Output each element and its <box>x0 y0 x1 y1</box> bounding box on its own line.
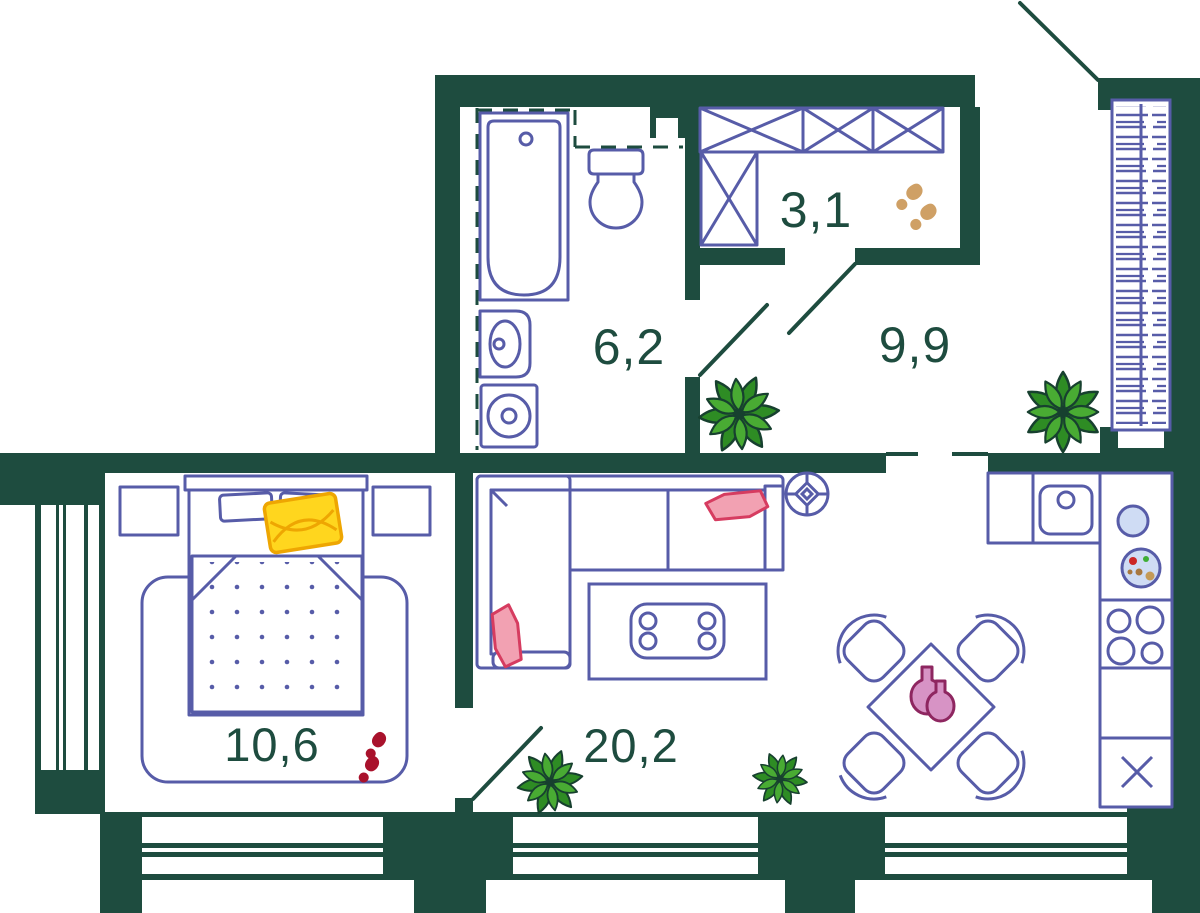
wall-bathroom-east-stub <box>685 377 700 455</box>
nightstand-right-icon <box>373 487 430 535</box>
pier-below-1 <box>414 880 486 913</box>
wall-bottom-right-pier <box>1152 880 1200 913</box>
coffee-table-icon <box>631 604 724 658</box>
window-left-line2 <box>56 505 59 770</box>
hanger-rail-icon <box>1112 100 1170 430</box>
wall-bathroom-east <box>685 107 700 300</box>
vent-notch <box>656 118 678 138</box>
windows-bottom <box>142 812 1127 880</box>
wall-wardrobe-bottom-right <box>855 248 980 265</box>
wall-passage-lip-left <box>886 452 918 456</box>
wall-left-bump <box>0 453 105 505</box>
room-label-bedroom: 10,6 <box>224 718 319 771</box>
stool-icon <box>1118 506 1148 536</box>
wall-main-horizontal <box>0 453 886 473</box>
window-left-line5 <box>99 505 105 770</box>
wall-wardrobe-bottom-left <box>700 248 785 265</box>
wall-bottom-left-pier <box>100 812 142 913</box>
window-living-right <box>885 812 1127 880</box>
room-label-hallway: 9,9 <box>879 317 952 373</box>
floor-plan: 3,1 6,2 9,9 10,6 20,2 <box>0 0 1200 913</box>
washing-machine-icon <box>481 385 537 447</box>
wall-right <box>1170 78 1200 805</box>
bathtub-icon <box>480 113 568 300</box>
ceiling-light-icon <box>786 473 828 515</box>
pier-below-2 <box>785 880 855 913</box>
plate-icon <box>1122 549 1160 587</box>
yellow-pillow-icon <box>264 493 343 554</box>
wall-top <box>435 75 975 107</box>
room-label-wardrobe: 3,1 <box>780 182 853 238</box>
kitchen-sink-icon <box>1040 486 1092 534</box>
room-label-bathroom: 6,2 <box>593 319 666 375</box>
room-label-living-kitchen: 20,2 <box>583 719 678 772</box>
bed-headboard <box>185 476 367 490</box>
wall-bathroom-left <box>435 75 460 473</box>
window-left-line1 <box>35 505 41 770</box>
nightstand-left-icon <box>120 487 178 535</box>
washbasin-icon <box>480 311 530 377</box>
wall-wardrobe-right <box>960 107 980 265</box>
wall-bedroom-living-stub <box>455 798 473 814</box>
wall-passage-lip-right <box>952 452 988 456</box>
window-left-line3 <box>63 505 66 770</box>
rail-niche-notch <box>1118 431 1164 448</box>
toilet-icon <box>589 150 643 228</box>
window-living-left <box>513 812 758 880</box>
wall-left-lower-block <box>35 770 105 814</box>
window-bedroom <box>142 812 383 880</box>
window-left-line4 <box>84 505 88 770</box>
wall-bedroom-living <box>455 453 473 708</box>
bed-duvet <box>192 556 362 712</box>
